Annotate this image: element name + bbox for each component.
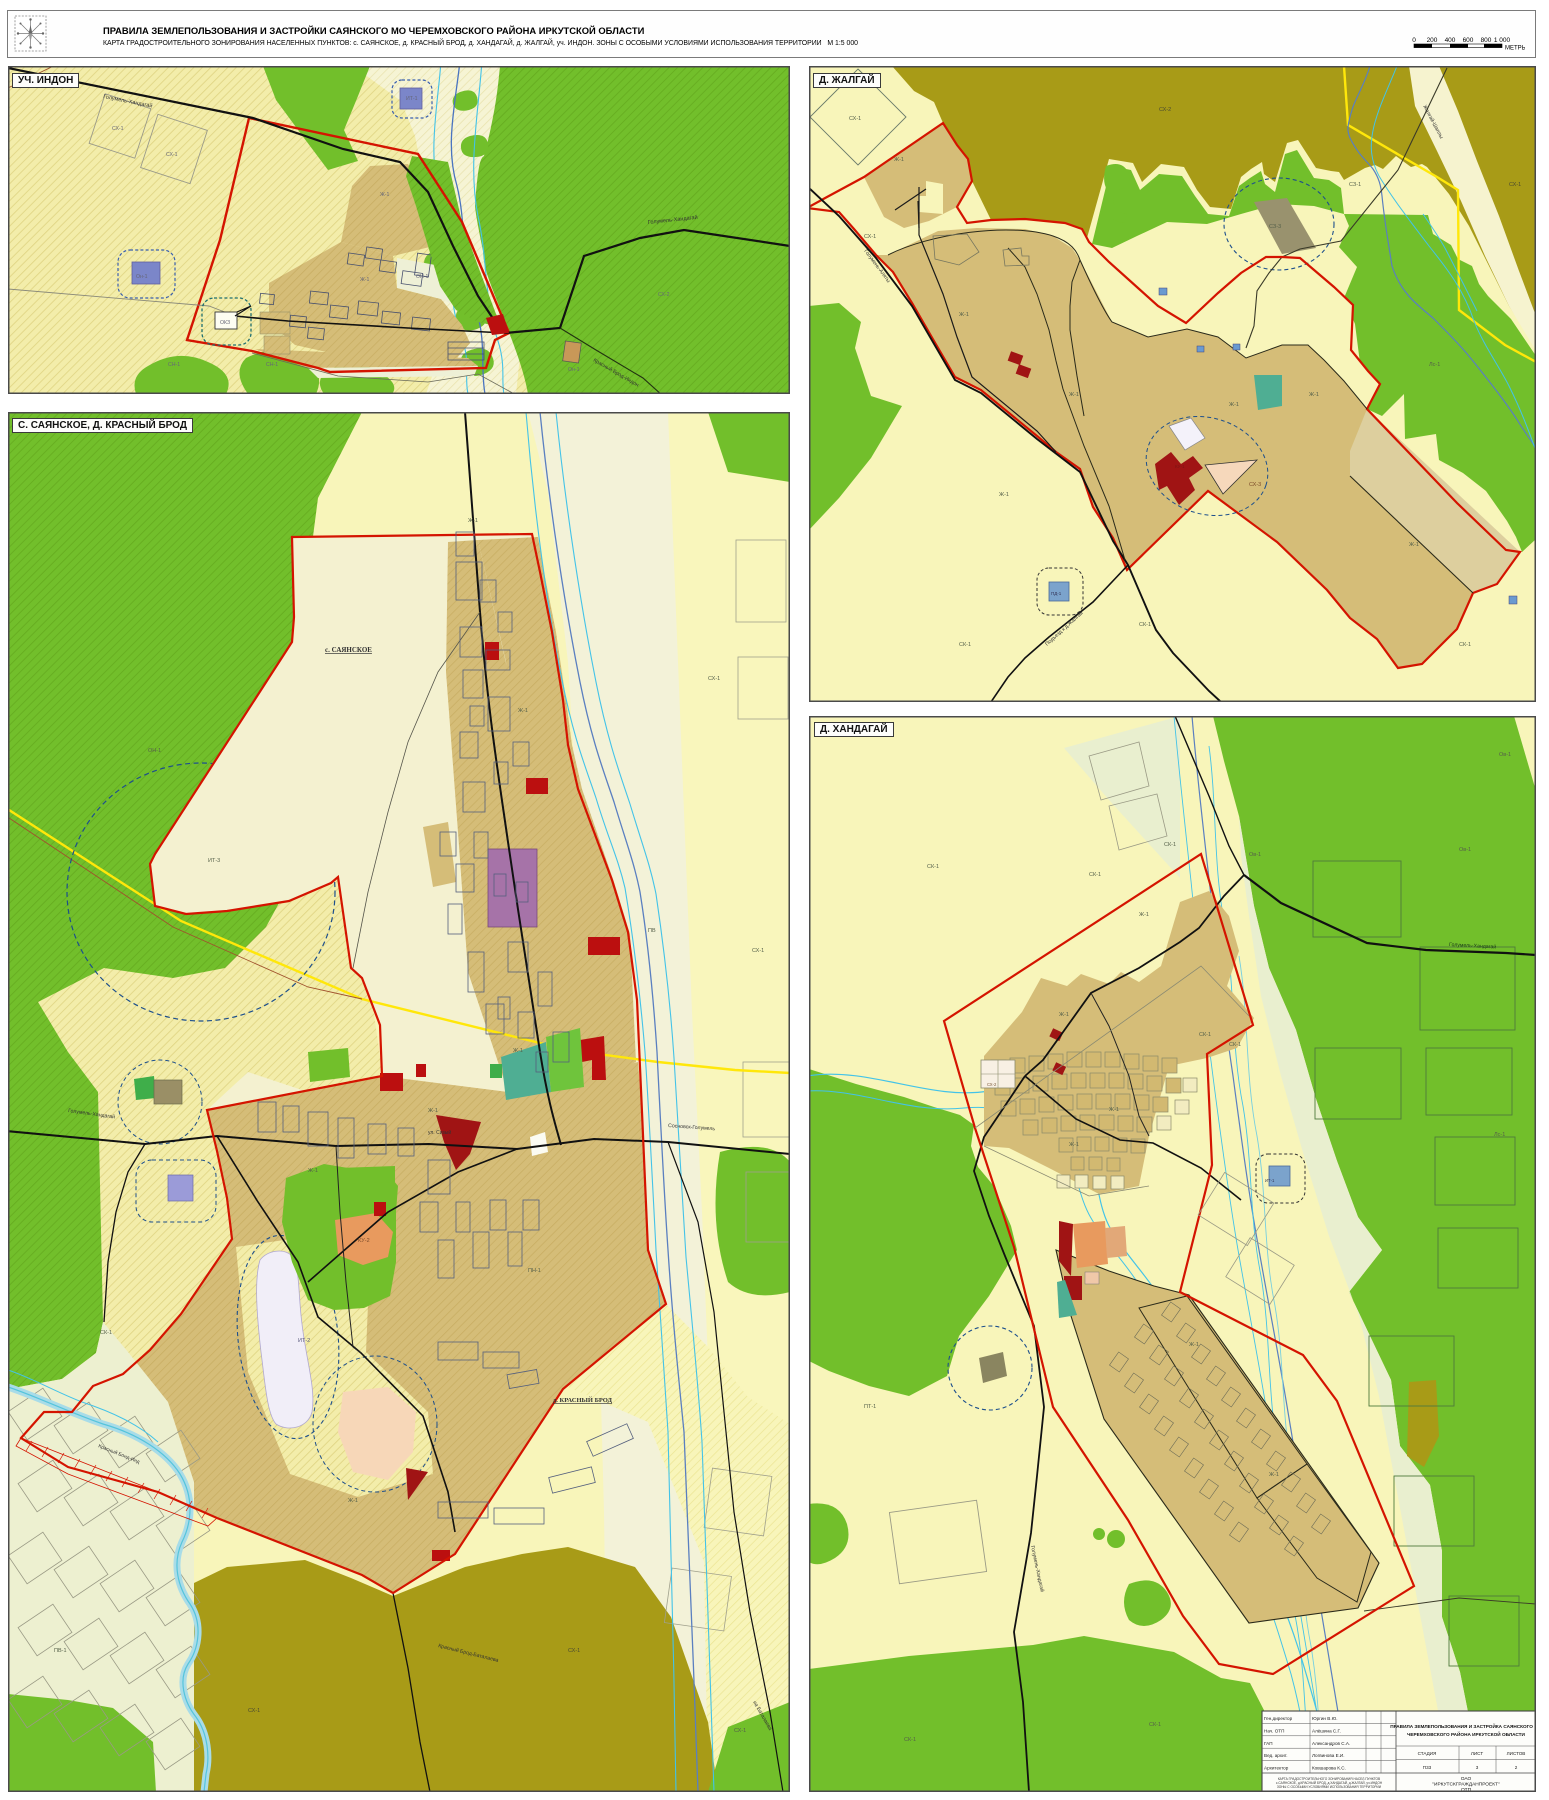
svg-text:ОН-1: ОН-1 <box>148 748 161 754</box>
svg-text:ЗОНЫ С ОСОБЫМИ УСЛОВИЯМИ ИСПОЛ: ЗОНЫ С ОСОБЫМИ УСЛОВИЯМИ ИСПОЛЬЗОВАНИЯ Т… <box>1277 1785 1382 1789</box>
svg-text:СХ-1: СХ-1 <box>166 152 178 158</box>
svg-text:СХ-1: СХ-1 <box>752 948 764 954</box>
svg-text:Ж-1: Ж-1 <box>1309 392 1319 398</box>
svg-text:Ж-1: Ж-1 <box>1229 402 1239 408</box>
svg-text:Лс-1: Лс-1 <box>1494 1132 1505 1138</box>
svg-text:ИТ-3: ИТ-3 <box>208 858 220 864</box>
svg-text:ПТ-1: ПТ-1 <box>864 1404 876 1410</box>
svg-text:Он-1: Он-1 <box>568 367 580 373</box>
svg-text:МЕТРЫ: МЕТРЫ <box>1505 46 1525 52</box>
svg-text:СК-1: СК-1 <box>959 642 971 648</box>
svg-text:Юргин В.Ю.: Юргин В.Ю. <box>1312 1716 1338 1721</box>
svg-text:600: 600 <box>1463 37 1474 44</box>
svg-text:Ж-1: Ж-1 <box>1109 1107 1119 1113</box>
svg-text:Ж-1: Ж-1 <box>1189 1342 1199 1348</box>
svg-text:СЗ-3: СЗ-3 <box>1269 224 1281 230</box>
svg-text:Ж-1: Ж-1 <box>468 518 478 524</box>
svg-text:Ж-1: Ж-1 <box>1069 1142 1079 1148</box>
svg-text:СХ-2: СХ-2 <box>987 1082 997 1087</box>
svg-text:Ж-1: Ж-1 <box>894 157 904 163</box>
svg-text:ОН-1: ОН-1 <box>416 274 429 280</box>
svg-text:Ж-1: Ж-1 <box>518 708 528 714</box>
svg-text:Ж-1: Ж-1 <box>380 192 390 198</box>
svg-text:Архитектор: Архитектор <box>1264 1766 1289 1771</box>
svg-text:800: 800 <box>1481 37 1492 44</box>
svg-text:Ж-1: Ж-1 <box>999 492 1009 498</box>
svg-text:СН-1: СН-1 <box>168 362 180 368</box>
svg-text:Алёшина С.Г.: Алёшина С.Г. <box>1312 1728 1341 1733</box>
svg-text:Ж-1: Ж-1 <box>1069 392 1079 398</box>
svg-text:СК-1: СК-1 <box>1149 1722 1161 1728</box>
svg-text:СН-1: СН-1 <box>266 362 278 368</box>
svg-text:ОАО: ОАО <box>1461 1776 1472 1782</box>
svg-text:ЧЕРЕМХОВСКОГО РАЙОНА ИРКУТСКОЙ: ЧЕРЕМХОВСКОГО РАЙОНА ИРКУТСКОЙ ОБЛАСТИ <box>1407 1730 1525 1737</box>
svg-text:400: 400 <box>1445 37 1456 44</box>
svg-text:СЗ-1: СЗ-1 <box>1349 182 1361 188</box>
svg-text:"ИРКУТСКГРАЖДАНПРОЕКТ": "ИРКУТСКГРАЖДАНПРОЕКТ" <box>1432 1782 1500 1788</box>
svg-text:Нач. ОТП: Нач. ОТП <box>1264 1728 1284 1733</box>
svg-text:3: 3 <box>1476 1765 1479 1770</box>
svg-text:СХ-3: СХ-3 <box>1249 482 1261 488</box>
svg-text:ОКЗ: ОКЗ <box>220 320 230 326</box>
svg-text:ПД-1: ПД-1 <box>1051 591 1062 596</box>
svg-text:Ов-1: Ов-1 <box>1249 852 1261 858</box>
svg-text:СХ-2: СХ-2 <box>1159 107 1171 113</box>
svg-text:Ж-1: Ж-1 <box>428 1108 438 1114</box>
svg-text:2: 2 <box>1515 1765 1518 1770</box>
svg-text:СК-1: СК-1 <box>1459 642 1471 648</box>
svg-text:Ковшарова К.С.: Ковшарова К.С. <box>1312 1766 1346 1771</box>
svg-text:ЛИСТ: ЛИСТ <box>1471 1751 1483 1756</box>
svg-text:СК-1: СК-1 <box>1199 1032 1211 1038</box>
svg-text:СК-1: СК-1 <box>1089 872 1101 878</box>
svg-text:ГАП: ГАП <box>1264 1741 1273 1746</box>
svg-text:СХ-1: СХ-1 <box>1509 182 1521 188</box>
svg-text:СХ-1: СХ-1 <box>864 234 876 240</box>
svg-text:Ов-1: Ов-1 <box>1459 847 1471 853</box>
svg-text:д. КРАСНЫЙ БРОД: д. КРАСНЫЙ БРОД <box>553 1396 613 1404</box>
svg-text:П33: П33 <box>1423 1765 1432 1770</box>
svg-text:СТАДИЯ: СТАДИЯ <box>1418 1751 1437 1756</box>
svg-text:СХ-1: СХ-1 <box>112 126 124 132</box>
svg-text:ул. Сизый: ул. Сизый <box>428 1129 451 1136</box>
svg-text:Ж-1: Ж-1 <box>348 1498 358 1504</box>
svg-text:ИТ-2: ИТ-2 <box>298 1338 310 1344</box>
svg-text:с. САЯНСКОЕ: с. САЯНСКОЕ <box>325 646 372 654</box>
svg-text:СК-1: СК-1 <box>1164 842 1176 848</box>
svg-text:ПРАВИЛА ЗЕМЛЕПОЛЬЗОВАНИЯ И ЗАС: ПРАВИЛА ЗЕМЛЕПОЛЬЗОВАНИЯ И ЗАСТРОЙКА САЯ… <box>1390 1722 1536 1729</box>
svg-text:200: 200 <box>1427 37 1438 44</box>
svg-text:ПВ-1: ПВ-1 <box>54 1648 67 1654</box>
svg-text:Он-1: Он-1 <box>136 274 148 280</box>
svg-text:Ов-1: Ов-1 <box>1499 752 1511 758</box>
svg-text:СХ-1: СХ-1 <box>568 1648 580 1654</box>
svg-text:Лс-1: Лс-1 <box>1429 362 1440 368</box>
svg-text:СК-1: СК-1 <box>100 1330 112 1336</box>
svg-text:Ж-1: Ж-1 <box>1409 542 1419 548</box>
svg-text:ПВ: ПВ <box>648 928 656 934</box>
svg-text:ПН-1: ПН-1 <box>528 1268 541 1274</box>
svg-text:СК-1: СК-1 <box>1139 622 1151 628</box>
svg-text:Ж-1: Ж-1 <box>959 312 969 318</box>
svg-text:СК-1: СК-1 <box>1229 1042 1241 1048</box>
svg-text:Логвинова Е.И.: Логвинова Е.И. <box>1312 1753 1344 1758</box>
svg-text:Ж-1: Ж-1 <box>1139 912 1149 918</box>
svg-text:КУ-2: КУ-2 <box>358 1238 370 1244</box>
svg-text:Ж-1: Ж-1 <box>1269 1472 1279 1478</box>
svg-text:СХ-1: СХ-1 <box>734 1728 746 1734</box>
svg-text:1 000: 1 000 <box>1494 37 1511 44</box>
svg-text:ЛИСТОВ: ЛИСТОВ <box>1507 1751 1526 1756</box>
svg-text:0: 0 <box>1412 37 1416 44</box>
svg-text:Ж-1: Ж-1 <box>360 277 370 283</box>
svg-text:Ж-1: Ж-1 <box>308 1168 318 1174</box>
svg-text:Вед. архит.: Вед. архит. <box>1264 1753 1288 1758</box>
svg-text:СХ-2: СХ-2 <box>658 292 670 298</box>
svg-text:ИТ-1: ИТ-1 <box>1265 1178 1275 1183</box>
svg-text:СК-1: СК-1 <box>927 864 939 870</box>
svg-text:ИТ-1: ИТ-1 <box>406 96 418 102</box>
svg-text:Александров С.А.: Александров С.А. <box>1312 1741 1350 1746</box>
svg-text:Ген.директор: Ген.директор <box>1264 1716 1293 1721</box>
svg-text:СХ-1: СХ-1 <box>248 1708 260 1714</box>
svg-text:Ж-1: Ж-1 <box>1059 1012 1069 1018</box>
svg-text:СХ-1: СХ-1 <box>708 676 720 682</box>
svg-text:Ж-1: Ж-1 <box>513 1048 523 1054</box>
svg-text:СК-1: СК-1 <box>904 1737 916 1743</box>
svg-text:КУ-1: КУ-1 <box>1175 464 1185 469</box>
svg-text:СХ-1: СХ-1 <box>849 116 861 122</box>
